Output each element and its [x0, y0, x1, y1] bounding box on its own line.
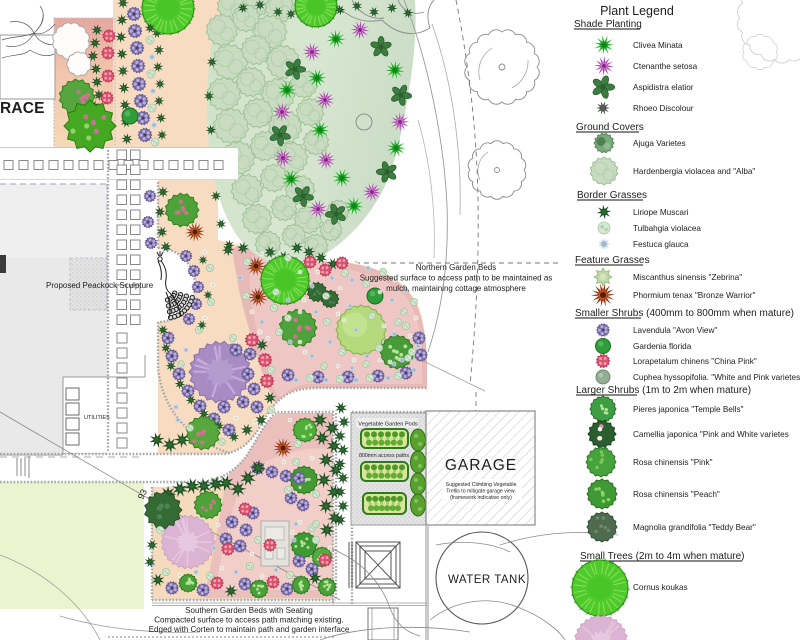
svg-text:Lorapetalum chinens "China Pin: Lorapetalum chinens "China Pink" — [633, 357, 757, 366]
svg-text:Larger Shrubs (1m to 2m when m: Larger Shrubs (1m to 2m when mature) — [576, 385, 751, 396]
svg-text:Suggested Climbing Vegetable: Suggested Climbing Vegetable — [446, 482, 517, 488]
svg-text:Lavendula "Avon View": Lavendula "Avon View" — [633, 326, 717, 335]
svg-text:Edged with Corten to maintain: Edged with Corten to maintain path and g… — [149, 625, 350, 634]
svg-text:Clivea Minata: Clivea Minata — [633, 41, 683, 50]
svg-text:Rosa chinensis "Peach": Rosa chinensis "Peach" — [633, 490, 720, 499]
svg-text:RACE: RACE — [0, 100, 45, 117]
svg-text:Aspidistra elatior: Aspidistra elatior — [633, 83, 694, 92]
svg-text:Tulbahgia violacea: Tulbahgia violacea — [633, 224, 701, 233]
svg-text:Feature Grasses: Feature Grasses — [575, 255, 649, 266]
svg-text:Vegetable Garden Pods: Vegetable Garden Pods — [358, 422, 418, 428]
svg-text:Trellis to mitigate garage vie: Trellis to mitigate garage view. — [446, 489, 516, 495]
svg-text:Shade Planting: Shade Planting — [574, 19, 642, 30]
svg-text:Pieres japonica "Temple Bells": Pieres japonica "Temple Bells" — [633, 405, 744, 414]
svg-text:Ground Covers: Ground Covers — [576, 122, 644, 133]
svg-text:WATER TANK: WATER TANK — [448, 574, 526, 586]
svg-text:Liriope Muscari: Liriope Muscari — [633, 208, 689, 217]
svg-text:Suggested surface to access pa: Suggested surface to access path to be m… — [360, 274, 553, 283]
svg-text:mulch, maintaining cottage atm: mulch, maintaining cottage atmosphere — [386, 284, 526, 293]
svg-text:Cornus koukas: Cornus koukas — [633, 583, 688, 592]
svg-text:Border Grasses: Border Grasses — [577, 190, 647, 201]
svg-text:Rosa chinensis "Pink": Rosa chinensis "Pink" — [633, 458, 713, 467]
svg-text:Phormium tenax "Bronze Warrior: Phormium tenax "Bronze Warrior" — [633, 291, 756, 300]
svg-text:Hardenbergia violacea and "Alb: Hardenbergia violacea and "Alba" — [633, 167, 755, 176]
svg-text:Miscanthus sinensis "Zebrina": Miscanthus sinensis "Zebrina" — [633, 273, 742, 282]
svg-text:Festuca glauca: Festuca glauca — [633, 240, 689, 249]
svg-text:GARAGE: GARAGE — [445, 457, 517, 474]
svg-text:Ajuga Varietes: Ajuga Varietes — [633, 139, 686, 148]
svg-text:Magnolia grandifolia "Teddy Be: Magnolia grandifolia "Teddy Bear" — [633, 523, 756, 532]
svg-text:Southern Garden Beds with Seat: Southern Garden Beds with Seating — [185, 606, 313, 615]
svg-text:Cuphea hyssopifolia. "White an: Cuphea hyssopifolia. "White and Pink var… — [633, 373, 800, 382]
svg-text:800mm access paths: 800mm access paths — [359, 453, 409, 459]
svg-text:Smaller Shrubs (400mm to 800mm: Smaller Shrubs (400mm to 800mm when matu… — [575, 308, 794, 319]
svg-text:UTILITIES: UTILITIES — [84, 415, 110, 421]
svg-text:Northern Garden Beds: Northern Garden Beds — [416, 263, 497, 272]
svg-text:(framework indicative only): (framework indicative only) — [450, 495, 512, 501]
svg-text:Compacted surface to access pa: Compacted surface to access path matchin… — [154, 616, 343, 625]
svg-text:Gardenia florida: Gardenia florida — [633, 342, 692, 351]
svg-text:Ctenanthe setosa: Ctenanthe setosa — [633, 62, 698, 71]
svg-text:Rhoeo Discolour: Rhoeo Discolour — [633, 104, 694, 113]
svg-text:Plant Legend: Plant Legend — [600, 4, 674, 18]
svg-text:Camellia japonica "Pink and Wh: Camellia japonica "Pink and White variet… — [633, 430, 789, 439]
svg-text:Proposed Peackock Sculpture: Proposed Peackock Sculpture — [46, 281, 154, 290]
